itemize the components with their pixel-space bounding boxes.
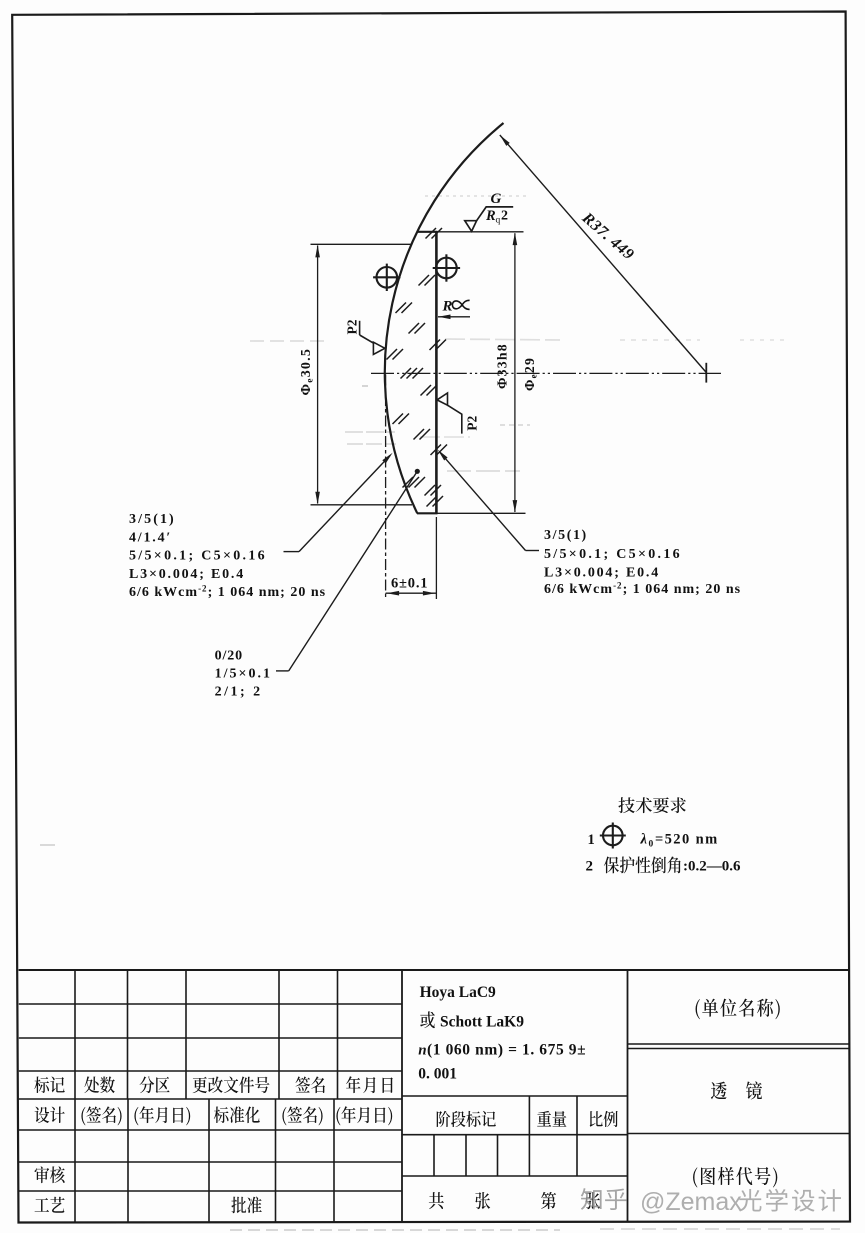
svg-text:R: R — [442, 299, 453, 315]
svg-text:5/5×0.1; C5×0.16: 5/5×0.1; C5×0.16 — [129, 549, 267, 564]
svg-text:6±0.1: 6±0.1 — [391, 576, 428, 592]
svg-text:R37. 449: R37. 449 — [578, 209, 637, 264]
svg-text:1/5×0.1: 1/5×0.1 — [215, 666, 272, 681]
svg-text:P2: P2 — [345, 319, 360, 334]
svg-text:Hoya LaC9: Hoya LaC9 — [420, 984, 496, 1001]
svg-text:n: n — [418, 1043, 426, 1059]
svg-text:6/6 kWcm-2; 1 064 nm; 20 ns: 6/6 kWcm-2; 1 064 nm; 20 ns — [129, 584, 326, 601]
svg-text:3/5(1): 3/5(1) — [129, 512, 176, 527]
svg-text:L3×0.004; E0.4: L3×0.004; E0.4 — [544, 565, 660, 580]
svg-text:L3×0.004; E0.4: L3×0.004; E0.4 — [129, 567, 245, 582]
svg-text:2: 2 — [501, 209, 508, 224]
svg-text:3/5(1): 3/5(1) — [544, 528, 588, 543]
svg-text:P2: P2 — [465, 416, 480, 431]
svg-text:@Zemax: @Zemax — [640, 1188, 742, 1216]
svg-text:0. 001: 0. 001 — [418, 1066, 457, 1083]
svg-text:0/20: 0/20 — [215, 648, 244, 663]
svg-text:=520 nm: =520 nm — [655, 832, 719, 848]
svg-text:Schott LaK9: Schott LaK9 — [440, 1014, 524, 1031]
svg-text:5/5×0.1; C5×0.16: 5/5×0.1; C5×0.16 — [544, 547, 682, 562]
svg-text:0: 0 — [649, 840, 654, 850]
svg-text:R: R — [485, 208, 496, 224]
svg-text::0.2—0.6: :0.2—0.6 — [683, 858, 741, 874]
svg-text:2/1; 2: 2/1; 2 — [215, 684, 263, 699]
svg-text:Φ33h8: Φ33h8 — [494, 343, 509, 389]
svg-text:4/1.4′: 4/1.4′ — [129, 530, 172, 545]
svg-text:(1 060 nm) = 1. 675 9±: (1 060 nm) = 1. 675 9± — [427, 1042, 586, 1059]
svg-text:q: q — [496, 216, 501, 226]
svg-text:λ: λ — [640, 832, 648, 848]
svg-text:Φe30.5: Φe30.5 — [299, 348, 316, 396]
svg-text:Φe29: Φe29 — [522, 357, 539, 391]
svg-text:2: 2 — [586, 858, 594, 874]
svg-text:1: 1 — [588, 832, 595, 848]
svg-text:G: G — [491, 191, 502, 207]
svg-text:6/6 kWcm-2; 1 064 nm; 20 ns: 6/6 kWcm-2; 1 064 nm; 20 ns — [544, 581, 741, 598]
